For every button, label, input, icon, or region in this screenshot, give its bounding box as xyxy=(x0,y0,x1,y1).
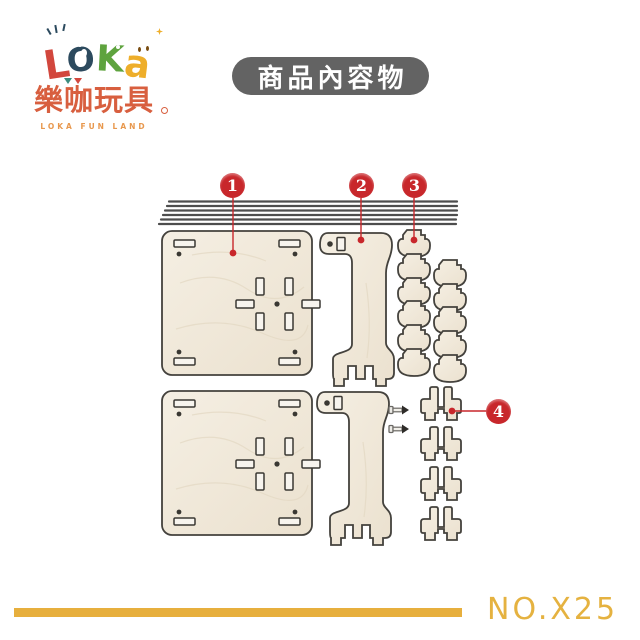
leader-dot-2 xyxy=(358,237,365,244)
part-marker-3: 3 xyxy=(402,173,427,198)
leader-dot-4 xyxy=(449,408,456,415)
pronged-connector xyxy=(421,387,461,420)
round-tab xyxy=(398,349,430,376)
round-tab xyxy=(434,355,466,382)
parts-diagram xyxy=(0,0,640,640)
part-marker-2: 2 xyxy=(349,173,374,198)
tab-column-left xyxy=(398,230,430,376)
square-panel-1 xyxy=(162,231,320,375)
round-tab xyxy=(398,325,430,352)
support-arm-2 xyxy=(317,392,391,545)
pronged-connector xyxy=(421,507,461,540)
square-panel-2 xyxy=(162,391,320,535)
tab-column-right xyxy=(434,260,466,382)
dowel-rods xyxy=(159,202,457,225)
leader-dot-1 xyxy=(230,250,237,257)
pronged-connector xyxy=(421,427,461,460)
screw xyxy=(389,406,409,415)
part-marker-1: 1 xyxy=(220,173,245,198)
screw xyxy=(389,425,409,434)
leader-dot-3 xyxy=(411,237,418,244)
footer-accent-bar xyxy=(14,608,462,617)
round-tab xyxy=(434,307,466,334)
pronged-connector xyxy=(421,467,461,500)
model-number: NO.X25 xyxy=(487,592,618,627)
round-tab xyxy=(434,260,466,287)
support-arm-1 xyxy=(320,233,394,386)
round-tab xyxy=(434,331,466,358)
screws xyxy=(389,406,409,434)
round-tab xyxy=(398,301,430,328)
round-tab xyxy=(398,254,430,281)
part-marker-4: 4 xyxy=(486,399,511,424)
